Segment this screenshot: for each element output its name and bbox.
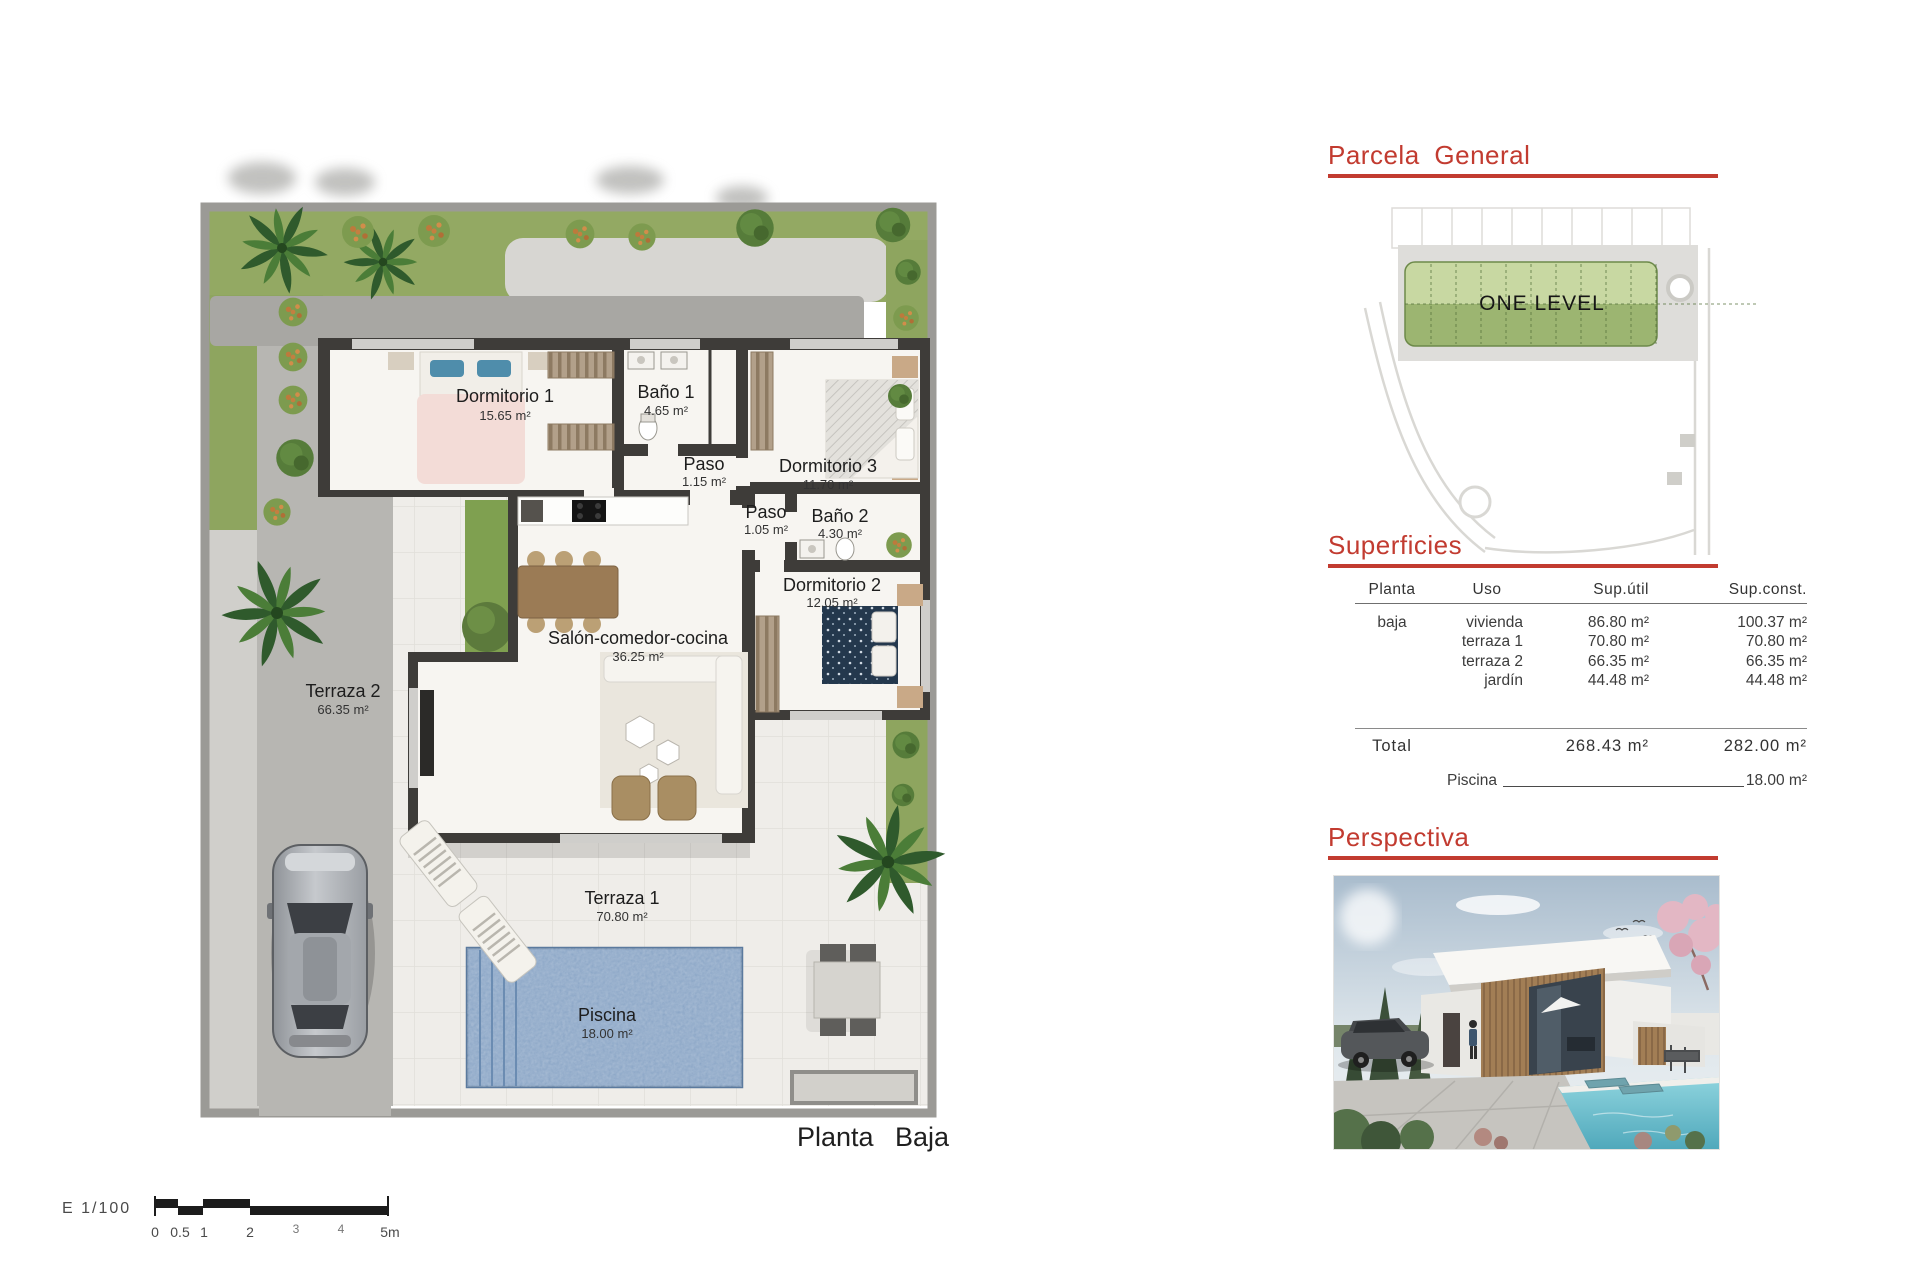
scale-bar: E 1/100 0 0.5 1 2 3 4 5m [62, 1196, 400, 1240]
cell-planta: baja [1355, 613, 1429, 633]
cell-uso: jardín [1429, 671, 1545, 691]
cell-const: 100.37 m² [1673, 613, 1807, 633]
area-piscina: 18.00 m² [581, 1026, 633, 1041]
parcela-rule [1328, 174, 1718, 178]
parcela-title: Parcela General [1328, 140, 1530, 171]
cell-const: 66.35 m² [1673, 652, 1807, 672]
superficies-rule [1328, 564, 1718, 568]
total-util: 268.43 m² [1545, 737, 1673, 757]
label-paso-1: Paso [683, 454, 724, 474]
label-bano-1: Baño 1 [637, 382, 694, 402]
scale-label: E 1/100 [62, 1200, 131, 1217]
one-level-plot: ONE LEVEL [1405, 262, 1757, 346]
superficies-table: Planta Uso Sup.útil Sup.const. baja vivi… [1355, 580, 1807, 790]
label-dormitorio-1: Dormitorio 1 [456, 386, 554, 406]
outdoor-dining-set [806, 944, 880, 1036]
cell-uso: terraza 1 [1429, 632, 1545, 652]
car [267, 845, 375, 1059]
label-salon: Salón-comedor-cocina [548, 628, 729, 648]
area-terraza-2: 66.35 m² [317, 702, 369, 717]
label-piscina: Piscina [578, 1005, 637, 1025]
area-dormitorio-3: 11.70 m² [803, 477, 854, 492]
entrance-mat [792, 1072, 916, 1103]
label-bano-2: Baño 2 [811, 506, 868, 526]
cell-const: 44.48 m² [1673, 671, 1807, 691]
superficies-header: Planta Uso Sup.útil Sup.const. [1355, 580, 1807, 600]
area-paso-2: 1.05 m² [744, 522, 789, 537]
area-dormitorio-1: 15.65 m² [479, 408, 531, 423]
scale-tick-2: 2 [246, 1224, 254, 1240]
total-label: Total [1355, 737, 1429, 757]
area-bano-1: 4.65 m² [644, 403, 689, 418]
table-row: baja vivienda 86.80 m² 100.37 m² [1355, 613, 1807, 633]
cell-planta [1355, 652, 1429, 672]
scale-tick-3: 3 [293, 1222, 300, 1236]
area-paso-1: 1.15 m² [682, 474, 727, 489]
villa [1421, 935, 1705, 1081]
piscina-row: Piscina 18.00 m² [1355, 772, 1807, 790]
one-level-label: ONE LEVEL [1479, 292, 1605, 315]
site-plan: ONE LEVEL [1310, 190, 1790, 560]
cell-util: 86.80 m² [1545, 613, 1673, 633]
cell-util: 70.80 m² [1545, 632, 1673, 652]
brochure-page: { "colors": { "accent_red": "#c23b30", "… [0, 0, 1920, 1280]
piscina-label: Piscina [1447, 772, 1497, 790]
area-bano-2: 4.30 m² [818, 526, 863, 541]
scale-tick-1: 1 [200, 1224, 208, 1240]
total-row: Total 268.43 m² 282.00 m² [1355, 737, 1807, 757]
label-paso-2: Paso [745, 502, 786, 522]
col-util: Sup.útil [1545, 580, 1673, 600]
total-const: 282.00 m² [1673, 737, 1807, 757]
area-salon: 36.25 m² [612, 649, 664, 664]
piscina-line [1503, 772, 1744, 787]
area-dormitorio-2: 12.05 m² [806, 595, 858, 610]
label-dormitorio-2: Dormitorio 2 [783, 575, 881, 595]
cell-util: 66.35 m² [1545, 652, 1673, 672]
plan-title: Planta Baja [797, 1122, 950, 1152]
table-row: terraza 1 70.80 m² 70.80 m² [1355, 632, 1807, 652]
table-row: jardín 44.48 m² 44.48 m² [1355, 671, 1807, 691]
scale-tick-5m: 5m [380, 1224, 399, 1240]
scale-tick-05: 0.5 [170, 1224, 190, 1240]
floor-plan: Dormitorio 1 15.65 m² Baño 1 4.65 m² Pas… [0, 0, 1080, 1280]
cell-uso: vivienda [1429, 613, 1545, 633]
piscina-value: 18.00 m² [1746, 772, 1807, 790]
cell-const: 70.80 m² [1673, 632, 1807, 652]
label-dormitorio-3: Dormitorio 3 [779, 456, 877, 476]
col-const: Sup.const. [1673, 580, 1807, 600]
table-row: terraza 2 66.35 m² 66.35 m² [1355, 652, 1807, 672]
col-planta: Planta [1355, 580, 1429, 600]
perspectiva-rule [1328, 856, 1718, 860]
perspective-render [1333, 875, 1720, 1150]
perspectiva-title: Perspectiva [1328, 822, 1469, 853]
cell-planta [1355, 671, 1429, 691]
scale-tick-4: 4 [338, 1222, 345, 1236]
cell-uso: terraza 2 [1429, 652, 1545, 672]
label-terraza-2: Terraza 2 [305, 681, 380, 701]
entrance-path [505, 238, 889, 302]
scale-tick-0: 0 [151, 1224, 159, 1240]
cell-planta [1355, 632, 1429, 652]
area-terraza-1: 70.80 m² [596, 909, 648, 924]
superficies-title: Superficies [1328, 530, 1462, 561]
cell-util: 44.48 m² [1545, 671, 1673, 691]
col-uso: Uso [1429, 580, 1545, 600]
label-terraza-1: Terraza 1 [584, 888, 659, 908]
